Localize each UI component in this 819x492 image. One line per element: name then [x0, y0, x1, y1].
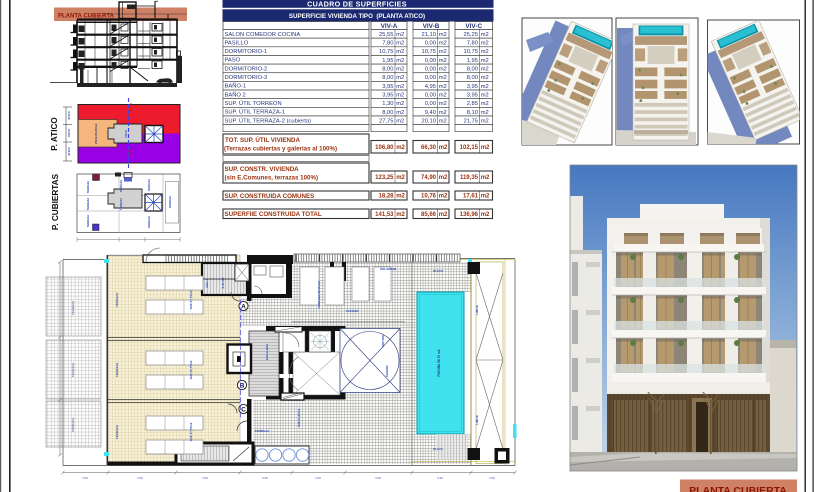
svg-text:m2: m2	[439, 118, 447, 124]
svg-text:3,95: 3,95	[467, 93, 478, 99]
svg-text:m2: m2	[396, 67, 404, 73]
svg-text:A: A	[241, 304, 246, 311]
svg-text:3,50: 3,50	[262, 476, 268, 480]
svg-text:m2: m2	[481, 101, 489, 107]
svg-text:ATICO: ATICO	[124, 130, 128, 138]
svg-text:m2: m2	[481, 145, 490, 151]
svg-text:m2: m2	[481, 84, 489, 90]
svg-text:9,40: 9,40	[425, 110, 436, 116]
svg-text:TERRAZA: TERRAZA	[147, 216, 151, 229]
svg-text:SUP. CONSTRUIDA COMUNES: SUP. CONSTRUIDA COMUNES	[225, 193, 315, 200]
svg-text:3,50: 3,50	[315, 476, 321, 480]
svg-text:m2: m2	[439, 84, 447, 90]
svg-text:TERRAZA: TERRAZA	[119, 198, 123, 211]
svg-text:m2: m2	[439, 41, 447, 47]
svg-text:SUP. ÚTIL TORREON: SUP. ÚTIL TORREON	[225, 100, 282, 107]
svg-text:ESCALERA: ESCALERA	[265, 343, 269, 360]
svg-text:8,00: 8,00	[382, 110, 393, 116]
svg-text:m2: m2	[481, 67, 489, 73]
svg-text:m2: m2	[396, 194, 405, 200]
svg-text:SALON COMEDOR COCINA: SALON COMEDOR COCINA	[225, 32, 301, 38]
svg-text:m2: m2	[396, 110, 404, 116]
svg-text:8,00: 8,00	[382, 67, 393, 73]
svg-text:BAÑO-1: BAÑO-1	[225, 83, 247, 90]
svg-text:VIV-A: VIV-A	[381, 23, 398, 30]
svg-text:m2: m2	[396, 118, 404, 124]
svg-text:m2: m2	[396, 32, 404, 38]
svg-text:8,10: 8,10	[467, 110, 478, 116]
svg-text:TERRAZA: TERRAZA	[71, 300, 75, 315]
svg-text:DORMITORIO-3: DORMITORIO-3	[225, 75, 268, 81]
svg-text:66,30: 66,30	[421, 145, 437, 151]
svg-text:3,50: 3,50	[82, 476, 88, 480]
svg-text:2,85: 2,85	[467, 101, 478, 107]
svg-text:TERRAZA: TERRAZA	[71, 417, 75, 432]
svg-text:27,75: 27,75	[379, 118, 394, 124]
svg-text:m2: m2	[396, 175, 405, 181]
svg-text:3,95: 3,95	[467, 84, 478, 90]
svg-text:25,25: 25,25	[463, 32, 478, 38]
svg-text:m2: m2	[439, 110, 447, 116]
svg-text:m2: m2	[481, 212, 490, 218]
svg-text:10,75: 10,75	[379, 49, 394, 55]
svg-text:m2: m2	[396, 93, 404, 99]
svg-text:TOT. SUP. ÚTIL VIVIENDA: TOT. SUP. ÚTIL VIVIENDA	[225, 137, 300, 144]
svg-text:20,10: 20,10	[421, 118, 436, 124]
svg-text:3,50: 3,50	[137, 476, 143, 480]
svg-text:CUADRO DE SUPERFICIES: CUADRO DE SUPERFICIES	[307, 0, 407, 8]
svg-text:LIMITE: LIMITE	[475, 415, 479, 425]
svg-text:TERRAZA: TERRAZA	[115, 362, 119, 377]
svg-text:m2: m2	[481, 175, 490, 181]
svg-text:m2: m2	[481, 75, 489, 81]
svg-text:TERRAZA: TERRAZA	[71, 362, 75, 377]
svg-text:CUBRIR: CUBRIR	[385, 365, 389, 377]
svg-text:8,00: 8,00	[467, 75, 478, 81]
svg-text:m2: m2	[396, 145, 405, 151]
svg-text:0,00: 0,00	[425, 58, 436, 64]
svg-text:3,95: 3,95	[382, 84, 393, 90]
svg-text:0,00: 0,00	[425, 41, 436, 47]
svg-text:0,00: 0,00	[425, 67, 436, 73]
svg-text:ATICO: ATICO	[67, 110, 71, 119]
svg-text:SUP.61,80m2: SUP.61,80m2	[297, 408, 301, 427]
svg-text:SUP. ÚTIL TERRAZA-2 (cubierta): SUP. ÚTIL TERRAZA-2 (cubierta)	[225, 117, 312, 124]
svg-text:SUPERFICIE VIVIENDA TIPO (PLA: SUPERFICIE VIVIENDA TIPO (PLANTA ATICO)	[289, 13, 425, 20]
svg-text:17,61: 17,61	[463, 194, 479, 200]
svg-text:ESC-A: ESC-A	[205, 278, 209, 288]
svg-text:SUP 37,75m2: SUP 37,75m2	[189, 290, 193, 309]
svg-text:106,80: 106,80	[375, 145, 394, 151]
svg-text:10,76: 10,76	[421, 194, 437, 200]
svg-text:C: C	[241, 407, 246, 414]
svg-text:DORMITORIO-2: DORMITORIO-2	[225, 66, 268, 72]
svg-text:SUP 35,75m2: SUP 35,75m2	[189, 360, 193, 379]
svg-text:PISCINA 58,70 m2: PISCINA 58,70 m2	[437, 349, 441, 376]
svg-text:m2: m2	[439, 58, 447, 64]
svg-text:ATICO: ATICO	[67, 146, 71, 155]
svg-text:TERRAZA: TERRAZA	[147, 179, 151, 192]
svg-text:m2: m2	[439, 194, 448, 200]
svg-text:TERRAZA: TERRAZA	[86, 215, 90, 228]
svg-text:ACCESO: ACCESO	[346, 309, 360, 313]
svg-text:m2: m2	[481, 110, 489, 116]
svg-text:3,50: 3,50	[489, 476, 495, 480]
svg-text:m2: m2	[481, 194, 490, 200]
svg-text:m2: m2	[481, 41, 489, 47]
svg-text:m2: m2	[481, 93, 489, 99]
svg-text:PATIO: PATIO	[129, 102, 133, 111]
svg-text:74,90: 74,90	[421, 175, 437, 181]
svg-text:0,00: 0,00	[425, 101, 436, 107]
svg-text:(Terrazas cubiertas y galerias: (Terrazas cubiertas y galerias al 100%)	[224, 146, 337, 153]
svg-text:m2: m2	[439, 145, 448, 151]
svg-text:VIV-B: VIV-B	[423, 23, 440, 30]
svg-text:m2: m2	[439, 175, 448, 181]
svg-text:9,05 m2: 9,05 m2	[221, 277, 225, 288]
svg-text:102,15: 102,15	[460, 145, 479, 151]
svg-text:TERRAZA: TERRAZA	[168, 196, 172, 209]
svg-text:3,50: 3,50	[437, 476, 443, 480]
svg-text:PLAYA: PLAYA	[433, 269, 443, 273]
svg-text:LIMITE: LIMITE	[475, 305, 479, 315]
svg-text:4,95: 4,95	[425, 84, 436, 90]
svg-text:P. CUBIERTAS: P. CUBIERTAS	[51, 173, 60, 230]
svg-text:BAÑO 2: BAÑO 2	[225, 91, 246, 98]
svg-text:TERRAZA 55,75 m2: TERRAZA 55,75 m2	[317, 281, 321, 309]
svg-text:3,50: 3,50	[202, 476, 208, 480]
svg-text:0,00: 0,00	[425, 93, 436, 99]
svg-text:0,00: 0,00	[425, 75, 436, 81]
svg-text:m2: m2	[439, 212, 448, 218]
svg-text:PASILLO: PASILLO	[225, 40, 249, 46]
svg-text:1,30: 1,30	[382, 101, 393, 107]
svg-text:m2: m2	[439, 93, 447, 99]
svg-text:TERRAZA: TERRAZA	[115, 424, 119, 439]
svg-text:m2: m2	[481, 58, 489, 64]
svg-text:m2: m2	[439, 75, 447, 81]
svg-text:PLANTA CUBIERTA: PLANTA CUBIERTA	[689, 485, 787, 492]
svg-text:8,00: 8,00	[467, 67, 478, 73]
svg-text:m2: m2	[396, 212, 405, 218]
svg-text:TERRAZA: TERRAZA	[115, 292, 119, 307]
svg-text:TERRAZA: TERRAZA	[86, 198, 90, 211]
svg-text:85,66: 85,66	[421, 212, 437, 218]
svg-text:m2: m2	[396, 41, 404, 47]
svg-text:7,80: 7,80	[467, 41, 478, 47]
svg-text:123,25: 123,25	[375, 175, 394, 181]
svg-text:SUP. CONSTR. VIVIENDA: SUP. CONSTR. VIVIENDA	[225, 166, 300, 173]
svg-text:SUP 37,75m2: SUP 37,75m2	[189, 422, 193, 441]
svg-text:136,96: 136,96	[460, 212, 479, 218]
svg-text:m2: m2	[439, 49, 447, 55]
svg-text:1,95: 1,95	[382, 58, 393, 64]
svg-text:10,75: 10,75	[421, 49, 436, 55]
svg-text:SUP.SIN: SUP.SIN	[381, 335, 385, 347]
svg-text:DORMITORIO-1: DORMITORIO-1	[225, 49, 268, 55]
svg-text:m2: m2	[396, 49, 404, 55]
svg-text:TERRAZA: TERRAZA	[86, 181, 90, 194]
svg-text:P. ATICO: P. ATICO	[50, 117, 59, 151]
svg-text:m2: m2	[439, 67, 447, 73]
svg-text:21,10: 21,10	[421, 32, 436, 38]
svg-text:141,53: 141,53	[375, 212, 394, 218]
svg-text:ATICO: ATICO	[67, 128, 71, 137]
svg-text:21,75: 21,75	[463, 118, 478, 124]
svg-text:m2: m2	[396, 101, 404, 107]
svg-text:SUPERFIIE CONSTRUIDA TOTAL: SUPERFIIE CONSTRUIDA TOTAL	[225, 211, 322, 218]
svg-text:m2: m2	[439, 101, 447, 107]
svg-text:10,75: 10,75	[463, 49, 478, 55]
svg-text:3,50: 3,50	[375, 476, 381, 480]
svg-text:m2: m2	[396, 84, 404, 90]
svg-text:119,35: 119,35	[460, 175, 479, 181]
svg-text:m2: m2	[481, 32, 489, 38]
svg-text:PASO: PASO	[225, 58, 241, 64]
svg-text:3,95: 3,95	[382, 93, 393, 99]
svg-text:(sin E.Comunes, terrazas 100%): (sin E.Comunes, terrazas 100%)	[225, 175, 319, 182]
svg-text:m2: m2	[439, 32, 447, 38]
svg-text:m2: m2	[396, 75, 404, 81]
svg-text:TERRAZA: TERRAZA	[119, 180, 123, 193]
svg-text:7,80: 7,80	[382, 41, 393, 47]
svg-text:1,95: 1,95	[467, 58, 478, 64]
svg-text:m2: m2	[481, 118, 489, 124]
svg-text:TERRAZA: TERRAZA	[255, 429, 270, 433]
svg-text:25,55: 25,55	[379, 32, 394, 38]
svg-text:m2: m2	[396, 58, 404, 64]
svg-text:PATIO: PATIO	[129, 147, 133, 156]
svg-text:18,28: 18,28	[378, 194, 394, 200]
svg-text:SUP. ÚTIL TERRAZA-1: SUP. ÚTIL TERRAZA-1	[225, 109, 285, 116]
svg-text:VIV-B 66,30m2: VIV-B 66,30m2	[94, 123, 98, 144]
svg-text:VIV-C: VIV-C	[465, 23, 482, 30]
svg-text:8,00: 8,00	[382, 75, 393, 81]
svg-text:m2: m2	[481, 49, 489, 55]
svg-text:PLAYA: PLAYA	[433, 447, 443, 451]
svg-text:SOLARIUM: SOLARIUM	[380, 267, 397, 271]
